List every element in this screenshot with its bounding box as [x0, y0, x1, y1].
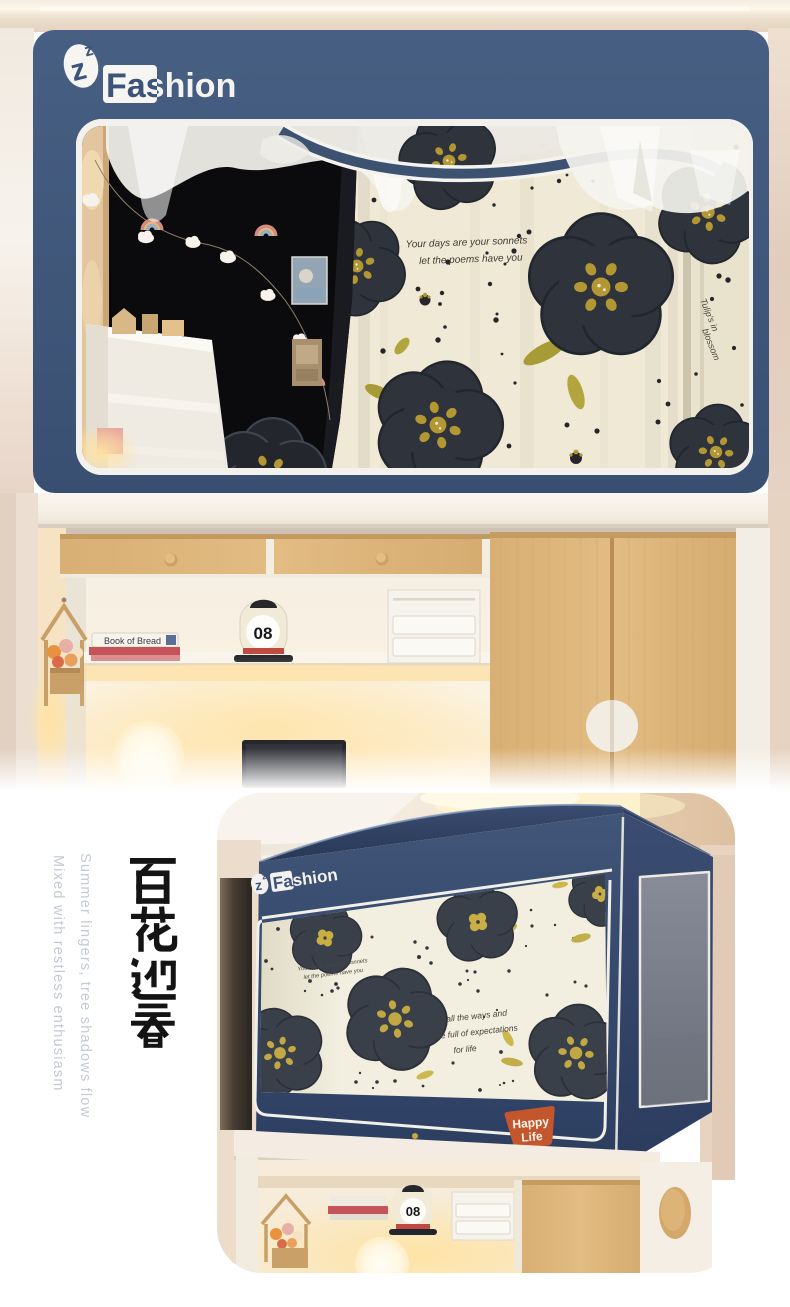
- svg-text:08: 08: [254, 624, 273, 643]
- svg-text:08: 08: [406, 1204, 420, 1219]
- svg-text:Summer lingers, tree shadows: Summer lingers, tree shadows flow: [77, 853, 93, 1118]
- svg-text:Book of Bread: Book of Bread: [104, 636, 161, 646]
- svg-text:Mixed with restless enthusiasm: Mixed with restless enthusiasm: [50, 855, 66, 1092]
- svg-text:Life: Life: [521, 1129, 544, 1145]
